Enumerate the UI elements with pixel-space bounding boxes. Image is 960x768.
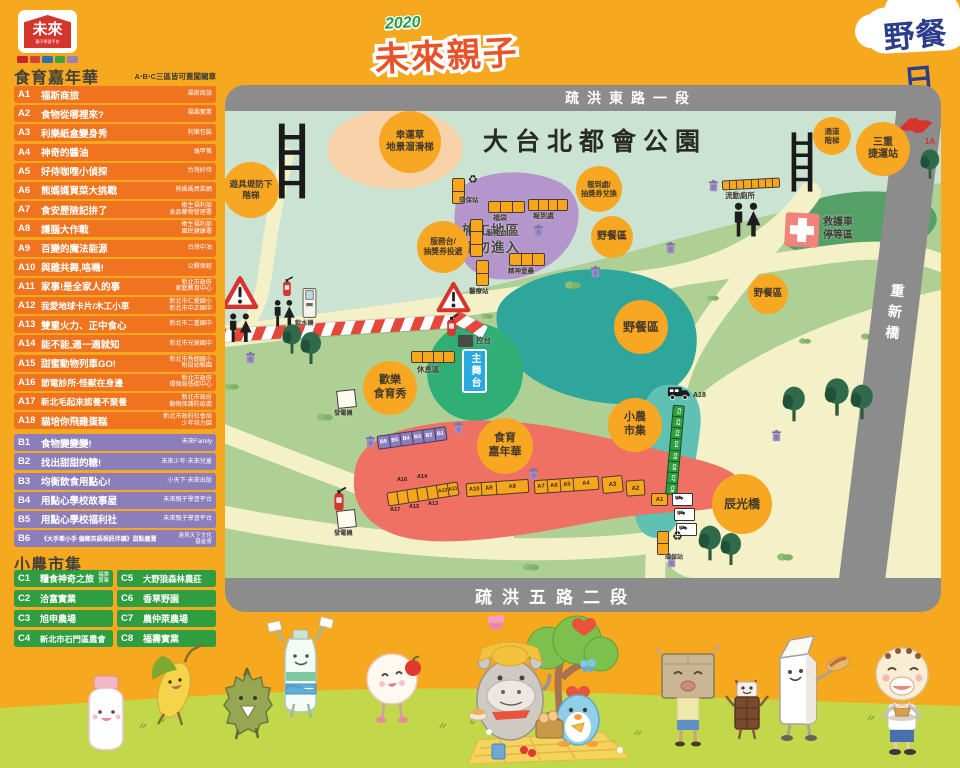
main-stage: 主舞台 — [462, 349, 487, 393]
trash-icon — [365, 435, 376, 448]
map-zones — [225, 85, 941, 612]
park-map: 重新橋 大台北都會公園 1A 施工地區 請勿進入 ♻ 環保站 福袋 報到處 服務… — [225, 85, 941, 612]
legend-row: B3均衡飲食用點心!小天下‧未來出版 — [14, 473, 216, 490]
legend-row: B2找出甜甜的糖!未來少年‧未來兒童 — [14, 453, 216, 470]
recycle-icon: ♻ — [672, 529, 683, 543]
trash-icon — [533, 224, 544, 237]
tree-icon — [823, 377, 851, 417]
booth-code: A16 — [397, 477, 407, 483]
spirit-fort-label: 精神堡壘 — [508, 268, 534, 276]
legend-row: B4用點心學校故事屋未來親子學習平台 — [14, 492, 216, 509]
legend-row: A11家事!是全家人的事新北市政府 家庭教育中心 — [14, 278, 216, 295]
trash-icon — [528, 467, 539, 480]
fire-extinguisher-icon — [444, 313, 459, 337]
road-label: 重新橋 — [881, 282, 909, 347]
legend-row: A13雙重火力、正中食心新北市二重國中 — [14, 316, 216, 333]
booth-code: A14 — [417, 474, 427, 480]
area-circle-chenguang-bridge: 辰光橋 — [712, 474, 772, 534]
road-label: 疏洪東路一段 — [565, 88, 697, 108]
legend-row: A6熊媽媽買菜大挑戰熊媽媽買菜網 — [14, 182, 216, 199]
booth-code: A15 — [409, 504, 419, 510]
area-circle-passage-stairs: 通道 階梯 — [813, 117, 851, 155]
eco-station-label: 環保站 — [459, 197, 479, 205]
legend-row: B5用點心學校福利社未來親子學習平台 — [14, 511, 216, 528]
service-desk-booths — [470, 219, 483, 257]
food-truck-icon — [674, 508, 695, 521]
legend-row: A12我愛地球卡片/木工小車新北市仁愛國小 新北市中正國中 — [14, 297, 216, 314]
park-name: 大台北都會公園 — [483, 122, 707, 158]
event-poster: { "brand": { "name": "未來", "subtitle": "… — [0, 0, 960, 768]
legend-row: A1福斯商旅福斯商旅 — [14, 86, 216, 103]
tree-icon — [919, 147, 941, 181]
lucky-bag-booths — [488, 201, 525, 213]
picnic-scene — [468, 615, 630, 765]
badge-chip — [17, 56, 28, 63]
road-shuhong-east: 疏洪東路一段 — [225, 85, 941, 111]
mobile-toilet-label: 流動廁所 — [725, 191, 755, 200]
area-circle-service-drop: 服務台/ 抽獎券投遞 — [417, 221, 469, 273]
a-booth: A3 — [601, 475, 624, 494]
eco-station-booths — [657, 531, 669, 555]
ambulance-cross-icon — [784, 212, 820, 248]
area-circle-play-stairs: 遊具堤防下 階梯 — [225, 162, 279, 218]
legend-row: C5大野狼森林農莊 — [117, 570, 216, 587]
trash-icon — [590, 265, 601, 278]
legend-row: A17新北毛起來認養不棄養新北市政府 動物保護防疫處 — [14, 393, 216, 410]
legend-row: A15甜蜜動物列車GO!新北市秀朗國小 附設幼稚園 — [14, 355, 216, 372]
butterfly-icon — [488, 615, 505, 630]
food-truck-icon — [672, 493, 693, 506]
lucky-bag-label: 福袋 — [493, 215, 507, 224]
legend-row: A16節電診所-怪獸在身邊新北市政府 環保局低碳中心 — [14, 374, 216, 391]
brand-subtitle: 親子學習平台 — [36, 39, 60, 45]
medical-label: 醫療站 — [469, 288, 489, 296]
checkin-booths — [528, 199, 568, 211]
booth-code: A13 — [428, 501, 438, 507]
rest-area-label: 休息區 — [417, 365, 440, 374]
trash-icon — [453, 421, 464, 434]
event-title: 2020 未來親子 未來親子 野餐日 — [368, 0, 621, 82]
legend-row: A4神奇的醬油龜甲萬 — [14, 144, 216, 161]
badge-chip — [42, 56, 53, 63]
badge-chip — [55, 56, 66, 63]
legend-a-header: 食育嘉年華 — [14, 64, 99, 88]
ambulance-label: 救護車 停等區 — [823, 217, 853, 242]
legend-row: A5好侍咖哩小偵探台灣好侍 — [14, 163, 216, 180]
control-label: 控台 — [476, 336, 491, 345]
water-dispenser-icon — [302, 288, 317, 318]
title-main: 未來親子 未來親子 — [373, 25, 519, 81]
area-circle-sanchong-station: 三重 捷運站 — [856, 122, 910, 176]
stamp-note: A‧B‧C三區皆可蓋闖關章 — [100, 71, 216, 82]
fire-extinguisher-icon — [280, 276, 294, 297]
trash-icon — [665, 241, 676, 254]
legend-row: A14能不能,適一適就知新北市光榮國中 — [14, 335, 216, 352]
generator-box — [336, 389, 357, 409]
a-booth: A1 — [651, 493, 668, 506]
restroom-icon — [730, 201, 762, 239]
legend-row: A3利樂紙盒變身秀利樂包裝 — [14, 124, 216, 141]
legend-row: B1食物變變變!未來Family — [14, 434, 216, 451]
rest-area-booths — [411, 351, 455, 363]
brand-name: 未來 — [32, 22, 62, 37]
area-circle-clover-slide: 幸運草 地景溜滑梯 — [379, 111, 441, 173]
area-circle-happy-show: 歡樂 食育秀 — [363, 361, 417, 415]
control-desk — [458, 335, 473, 347]
area-circle-picnic: 野餐區 — [748, 274, 788, 314]
fire-extinguisher-icon — [331, 486, 347, 512]
food-truck-icon — [667, 385, 691, 400]
legend-row: B6《大手牽小手 偏鄉英語視訊伴讀》甜點義賣遠見天下文化 基金會 — [14, 530, 216, 547]
book-icon: 未來 親子學習平台 — [24, 15, 71, 48]
medical-booths — [476, 260, 489, 286]
spirit-fort-booths — [509, 253, 545, 266]
area-circle-checkin-redeem: 報到處/ 抽獎券兌換 — [576, 166, 622, 212]
badge-chip — [67, 56, 78, 63]
a-booth: A2 — [625, 479, 645, 496]
booth-code: A17 — [390, 507, 400, 513]
stairs-icon — [788, 131, 816, 193]
legend-row: A7食安歷險記拚了衛生福利部 食品藥物管理署 — [14, 201, 216, 218]
restroom-icon — [226, 311, 253, 345]
area-circle-farmers-market: 小農 市集 — [608, 398, 662, 452]
brand-badges — [17, 56, 78, 63]
legend-row: A9百變的魔法能源台灣中油 — [14, 240, 216, 257]
legend-row: A8護腦大作戰衛生福利部 國民健康署 — [14, 220, 216, 237]
title-cloud: 野餐日 — [861, 0, 960, 55]
tree-icon — [849, 383, 875, 421]
metro-exit-code: 1A — [925, 137, 935, 146]
trash-icon — [245, 351, 256, 364]
tree-icon — [719, 531, 743, 567]
legend-list: A1福斯商旅福斯商旅 A2食物從哪裡來?福壽實業 A3利樂紙盒變身秀利樂包裝 A… — [14, 86, 216, 549]
tree-icon — [781, 385, 807, 423]
footer-illustration — [0, 600, 960, 768]
truck-code: A18 — [693, 392, 706, 399]
trash-icon — [708, 179, 719, 192]
badge-chip — [30, 56, 41, 63]
area-circle-picnic: 野餐區 — [591, 216, 633, 258]
generator-box — [336, 509, 357, 529]
legend-row: A10與雞共舞,咯嘰!公勝保經 — [14, 259, 216, 276]
warning-icon — [436, 281, 471, 315]
warning-icon — [225, 275, 259, 312]
stairs-icon — [275, 121, 309, 201]
generator-label: 發電機 — [334, 410, 353, 418]
recycle-icon: ♻ — [468, 173, 478, 186]
checkin-label: 報到處 — [533, 213, 554, 222]
area-circle-food-carnival: 食育 嘉年華 — [477, 418, 533, 474]
service-desk-label: 服務台 — [486, 230, 507, 239]
milk-bottle-character — [89, 676, 123, 750]
legend-row: A18貓培你飛雞蛋糕新北市政府社會局 少年培力園 — [14, 412, 216, 429]
tree-icon — [299, 331, 323, 365]
area-circle-picnic: 野餐區 — [614, 300, 668, 354]
legend-row: A2食物從哪裡來?福壽實業 — [14, 105, 216, 122]
brand-logo: 未來 親子學習平台 — [18, 10, 77, 53]
trash-icon — [771, 429, 782, 442]
eco-station-label: 環保站 — [665, 555, 683, 563]
legend-row: C1糧食神奇之旅福壽 實業 — [14, 570, 113, 587]
generator-label: 發電機 — [334, 530, 353, 538]
